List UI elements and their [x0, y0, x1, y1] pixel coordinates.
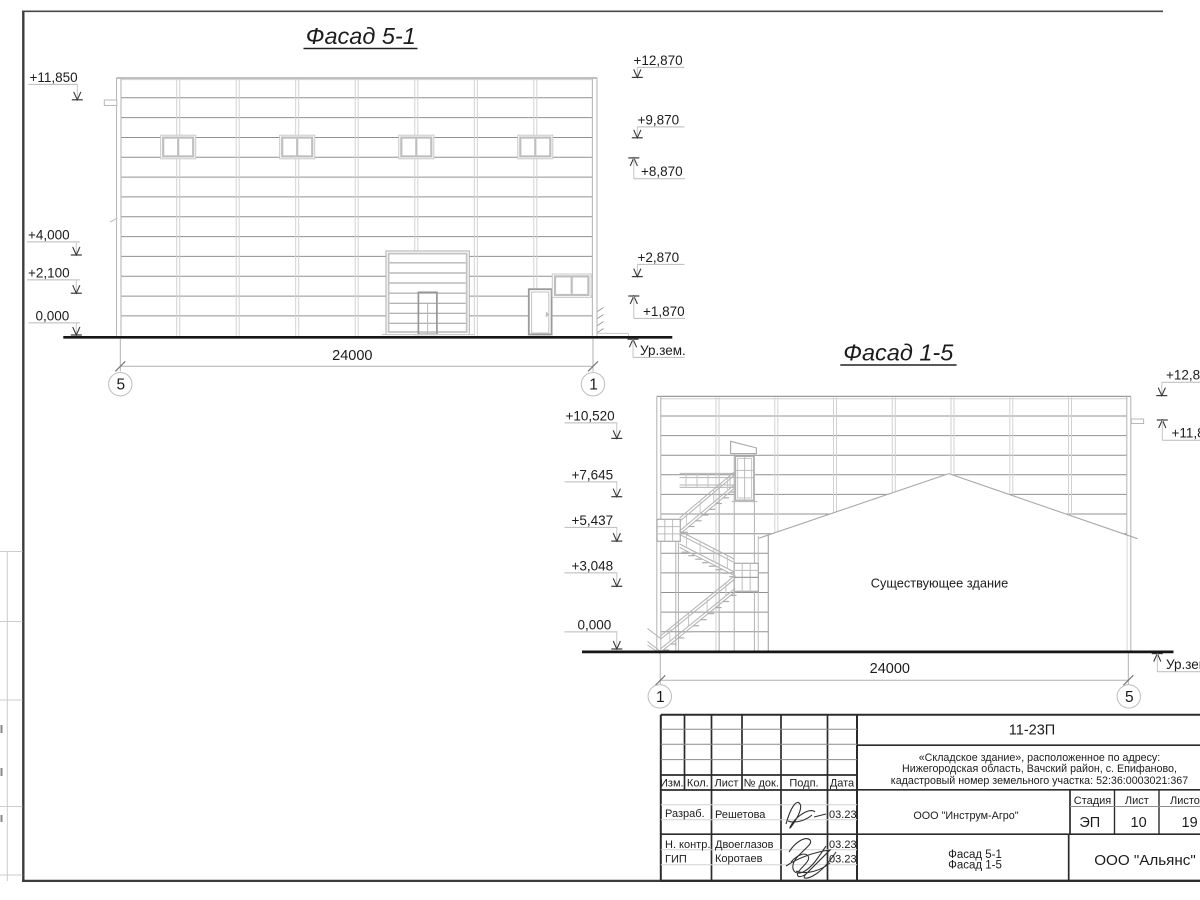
svg-text:Фасад 1-5: Фасад 1-5 [948, 860, 1002, 872]
svg-text:ООО "Альянс": ООО "Альянс" [1094, 852, 1196, 869]
svg-text:+8,870: +8,870 [641, 164, 683, 179]
svg-text:Н. контр.: Н. контр. [665, 839, 710, 851]
svg-text:11-23П: 11-23П [1009, 723, 1055, 739]
svg-text:03.23: 03.23 [829, 839, 857, 851]
svg-text:24000: 24000 [870, 661, 910, 677]
svg-text:Существующее здание: Существующее здание [871, 576, 1009, 591]
svg-text:Фасад 1-5: Фасад 1-5 [843, 339, 954, 365]
svg-text:+7,645: +7,645 [572, 467, 614, 482]
svg-text:+11,850: +11,850 [30, 70, 78, 85]
svg-text:Ур.зем.: Ур.зем. [640, 343, 686, 358]
svg-text:0,000: 0,000 [36, 308, 70, 323]
svg-text:Лист: Лист [715, 778, 739, 790]
svg-text:Стадия: Стадия [1074, 795, 1112, 807]
svg-text:1: 1 [589, 377, 598, 394]
svg-text:Подп.: Подп. [789, 778, 818, 790]
svg-text:Дата: Дата [830, 778, 855, 790]
svg-text:№ док.: № док. [744, 778, 779, 790]
svg-text:Двоеглазов: Двоеглазов [715, 839, 774, 851]
svg-text:ЭП: ЭП [1079, 815, 1100, 831]
svg-text:0,000: 0,000 [578, 617, 612, 632]
svg-text:Решетова: Решетова [715, 809, 766, 821]
svg-text:19: 19 [1182, 815, 1198, 831]
svg-text:Нижегородская область, Вачский: Нижегородская область, Вачский район, с.… [902, 763, 1177, 775]
svg-text:Изм.: Изм. [660, 778, 684, 790]
svg-text:+4,000: +4,000 [28, 227, 70, 242]
svg-text:+2,100: +2,100 [28, 265, 70, 280]
svg-text:Разраб.: Разраб. [665, 808, 705, 820]
svg-text:Лист: Лист [1125, 795, 1149, 807]
svg-text:+5,437: +5,437 [572, 513, 614, 528]
svg-text:Фасад 5-1: Фасад 5-1 [306, 23, 416, 49]
svg-text:+3,048: +3,048 [572, 558, 614, 573]
svg-text:10: 10 [1131, 815, 1147, 831]
svg-text:+9,870: +9,870 [638, 112, 680, 127]
svg-text:ООО "Инструм-Агро": ООО "Инструм-Агро" [913, 810, 1018, 822]
svg-text:+2,870: +2,870 [638, 250, 680, 265]
svg-text:+12,8: +12,8 [1166, 368, 1200, 383]
svg-text:5: 5 [116, 377, 125, 394]
svg-text:1: 1 [656, 689, 665, 706]
svg-text:Коротаев: Коротаев [715, 853, 763, 865]
svg-text:5: 5 [1125, 689, 1134, 706]
svg-text:03.23: 03.23 [829, 809, 857, 821]
svg-text:Листов: Листов [1170, 795, 1200, 807]
svg-text:+10,520: +10,520 [566, 408, 615, 423]
svg-text:ГИП: ГИП [665, 853, 687, 865]
svg-text:+11,8: +11,8 [1172, 426, 1200, 441]
svg-text:Ур.зем: Ур.зем [1166, 657, 1200, 672]
svg-text:24000: 24000 [332, 348, 372, 364]
svg-text:+1,870: +1,870 [643, 304, 685, 319]
svg-text:Кол.: Кол. [687, 778, 709, 790]
svg-text:+12,870: +12,870 [634, 53, 683, 68]
svg-text:кадастровый номер земельного у: кадастровый номер земельного участка: 52… [891, 775, 1188, 787]
